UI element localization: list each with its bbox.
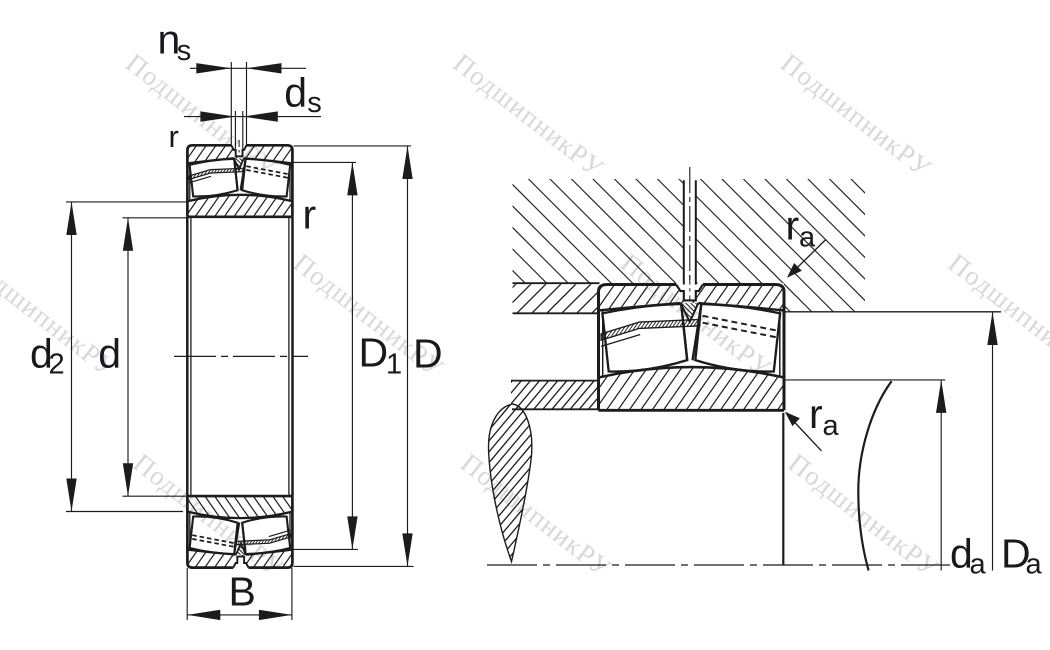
svg-text:r: r — [809, 391, 823, 437]
svg-text:d: d — [98, 330, 121, 376]
svg-text:2: 2 — [49, 349, 65, 381]
svg-text:s: s — [307, 87, 322, 119]
svg-text:a: a — [823, 410, 840, 442]
svg-text:1: 1 — [386, 349, 402, 381]
svg-text:r: r — [303, 192, 317, 238]
svg-text:a: a — [799, 222, 816, 254]
svg-text:D: D — [413, 330, 443, 376]
svg-text:a: a — [1026, 549, 1043, 581]
svg-text:r: r — [786, 203, 800, 249]
svg-text:B: B — [229, 568, 256, 614]
svg-text:a: a — [970, 549, 987, 581]
svg-text:D: D — [359, 330, 389, 376]
svg-text:d: d — [284, 69, 307, 115]
svg-text:s: s — [177, 35, 192, 67]
svg-text:r: r — [169, 119, 179, 154]
